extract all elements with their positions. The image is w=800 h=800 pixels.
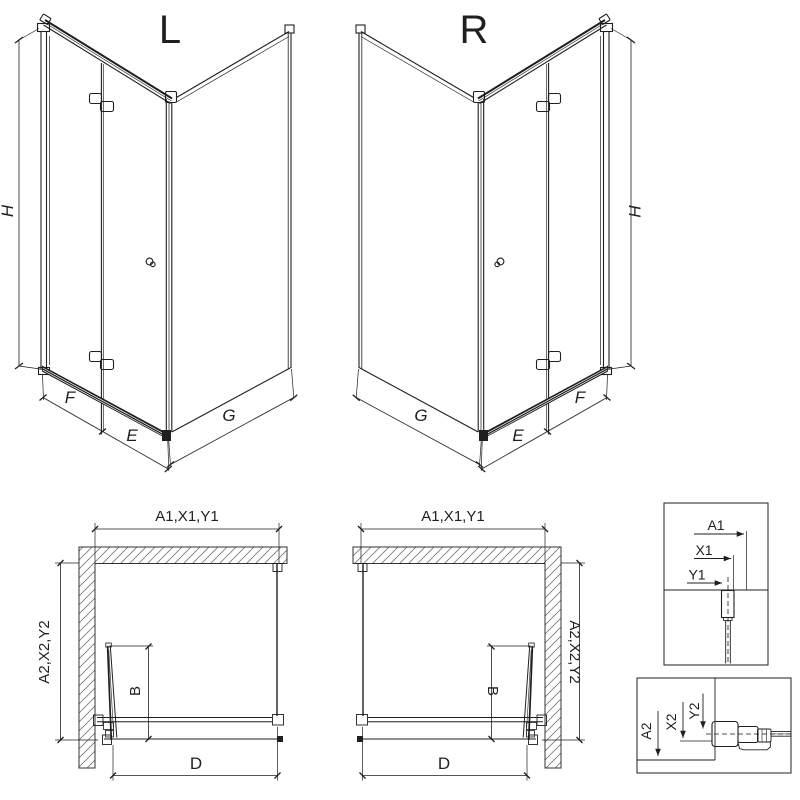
detail-2-wall-profile <box>706 722 791 750</box>
plan-right-entry-label: D <box>438 754 450 773</box>
iso-view-left: L H F E G <box>0 8 297 472</box>
detail-box-2-frame <box>637 678 791 773</box>
plan-left-entry-label: D <box>190 754 202 773</box>
detail-a2-label: A2 <box>638 722 654 739</box>
plan-left-width-label: A1,X1,Y1 <box>155 508 218 525</box>
iso-left-f-label: F <box>65 388 77 407</box>
iso-left-g-label: G <box>222 406 235 425</box>
iso-right-height-label: H <box>625 205 644 218</box>
detail-y2-label: Y2 <box>686 702 702 719</box>
technical-drawing-page: L H F E G R H F E G A1,X1,Y1 A2,X2,Y2 B … <box>0 0 800 800</box>
iso-left-height-label: H <box>0 204 17 217</box>
iso-left-title: L <box>159 8 181 52</box>
detail-y1-label: Y1 <box>688 567 705 583</box>
detail-1-wall-profile <box>722 577 735 664</box>
plan-right-depth-label: A2,X2,Y2 <box>566 620 583 683</box>
plan-view-right: A1,X1,Y1 A2,X2,Y2 B D <box>353 508 585 781</box>
shower-enclosure-diagram: L H F E G R H F E G A1,X1,Y1 A2,X2,Y2 B … <box>0 0 800 800</box>
plan-left-fold-label: B <box>127 686 144 696</box>
iso-right-title: R <box>460 8 489 52</box>
iso-right-f-label: F <box>575 388 587 407</box>
iso-right-e-label: E <box>512 426 524 445</box>
plan-right-width-label: A1,X1,Y1 <box>421 508 484 525</box>
detail-a1-label: A1 <box>707 517 724 533</box>
iso-view-right: R H F E G <box>353 8 644 472</box>
plan-view-left: A1,X1,Y1 A2,X2,Y2 B D <box>36 508 287 781</box>
iso-right-g-label: G <box>414 406 427 425</box>
detail-x2-label: X2 <box>663 713 679 730</box>
detail-box-width-dims: A1 X1 Y1 <box>664 503 768 665</box>
plan-left-depth-label: A2,X2,Y2 <box>36 620 53 683</box>
plan-right-fold-label: B <box>484 686 501 696</box>
iso-left-e-label: E <box>126 426 138 445</box>
detail-box-depth-dims: A2 X2 Y2 <box>637 678 791 773</box>
detail-x1-label: X1 <box>695 542 712 558</box>
